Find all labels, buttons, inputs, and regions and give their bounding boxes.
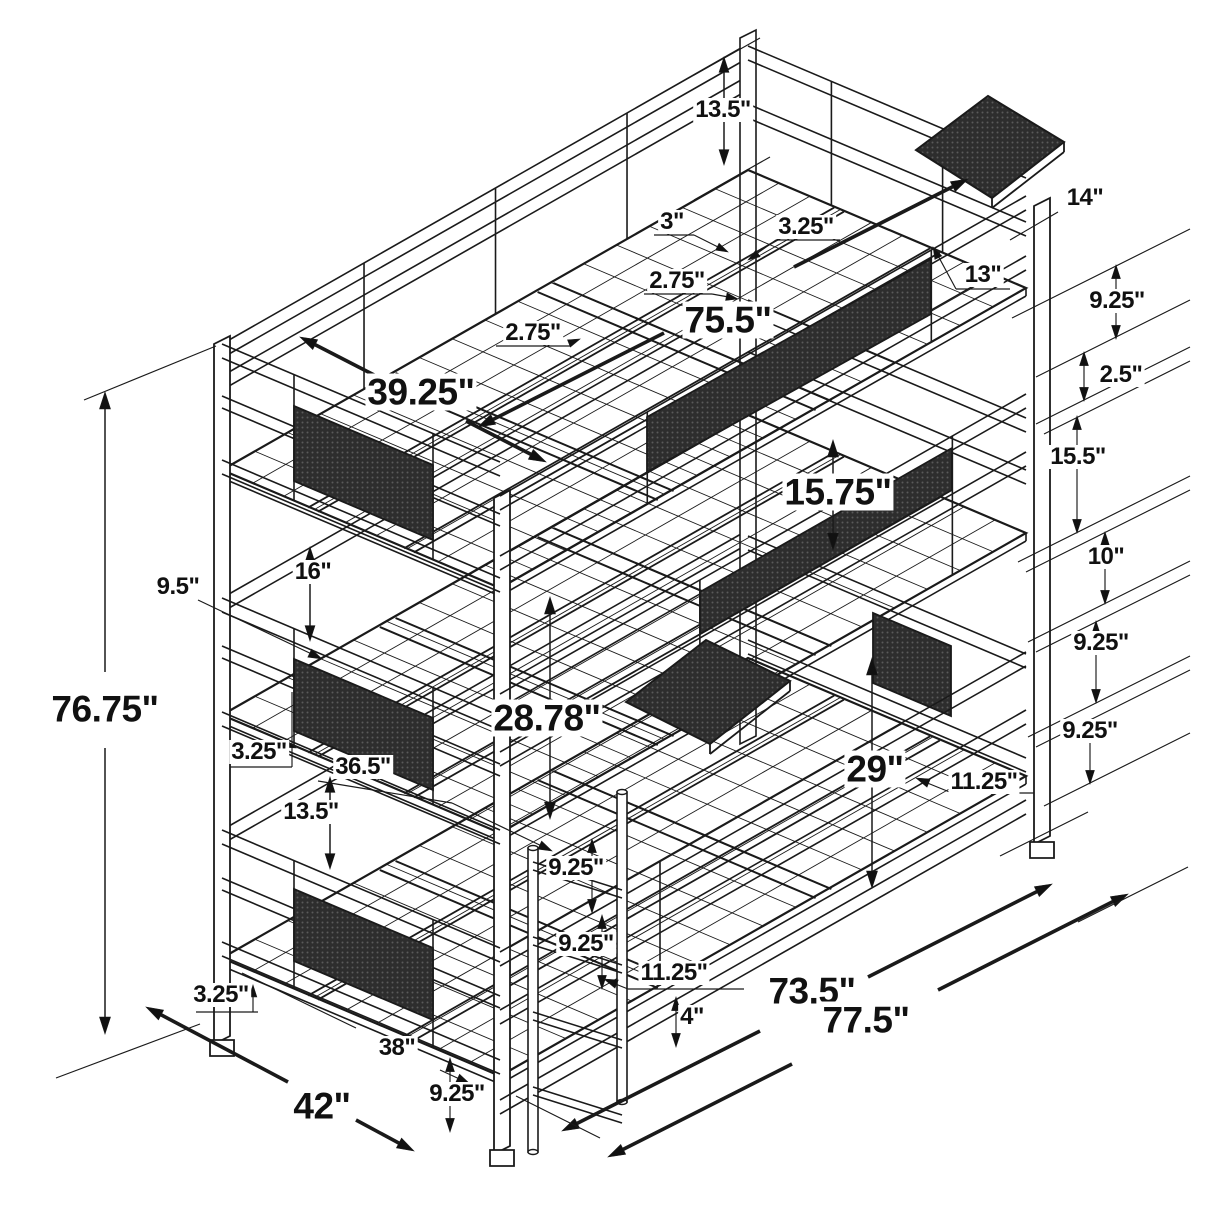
- dim-label: 16": [293, 560, 334, 584]
- dim-label: 9.25": [1060, 719, 1120, 743]
- dim-label: 76.75": [49, 691, 160, 728]
- dim-label: 29": [844, 751, 905, 788]
- dim-label: 42": [291, 1088, 352, 1125]
- dim-label: 13": [963, 263, 1004, 287]
- dim-label: 3.25": [191, 983, 251, 1007]
- bunk-bed-line-drawing: [0, 0, 1214, 1214]
- dim-label: 9.25": [1087, 289, 1147, 313]
- dim-label: 3.25": [229, 740, 289, 764]
- dim-label: 3.25": [776, 215, 836, 239]
- dim-label: 15.75": [782, 474, 893, 511]
- dim-label: 11.25": [948, 770, 1019, 794]
- dim-label: 2.5": [1098, 363, 1145, 387]
- dim-label: 77.5": [820, 1002, 911, 1039]
- dim-label: 13.5": [281, 800, 341, 824]
- dim-label: 36.5": [333, 755, 393, 779]
- dim-label: 9.5": [155, 575, 202, 599]
- dim-label: 14": [1065, 186, 1106, 210]
- dim-label: 11.25": [638, 961, 709, 985]
- dim-label: 9.25": [546, 856, 606, 880]
- dim-label: 3": [658, 210, 686, 234]
- bed-frame: [210, 30, 1064, 1166]
- dim-label: 9.25": [1071, 631, 1131, 655]
- dim-label: 15.5": [1048, 445, 1108, 469]
- dim-label: 9.25": [556, 932, 616, 956]
- dim-label: 4": [678, 1005, 706, 1029]
- dim-label: 2.75": [647, 269, 707, 293]
- dimension-diagram: 13.5"3"3.25"2.75"2.75"14"13"9.25"2.5"75.…: [0, 0, 1214, 1214]
- dim-label: 28.78": [491, 700, 602, 737]
- dim-label: 75.5": [682, 302, 773, 339]
- dim-label: 39.25": [365, 374, 476, 411]
- dim-label: 2.75": [503, 321, 563, 345]
- dim-label: 13.5": [693, 98, 753, 122]
- dim-label: 10": [1086, 545, 1127, 569]
- dim-label: 9.25": [427, 1082, 487, 1106]
- dim-label: 38": [377, 1036, 418, 1060]
